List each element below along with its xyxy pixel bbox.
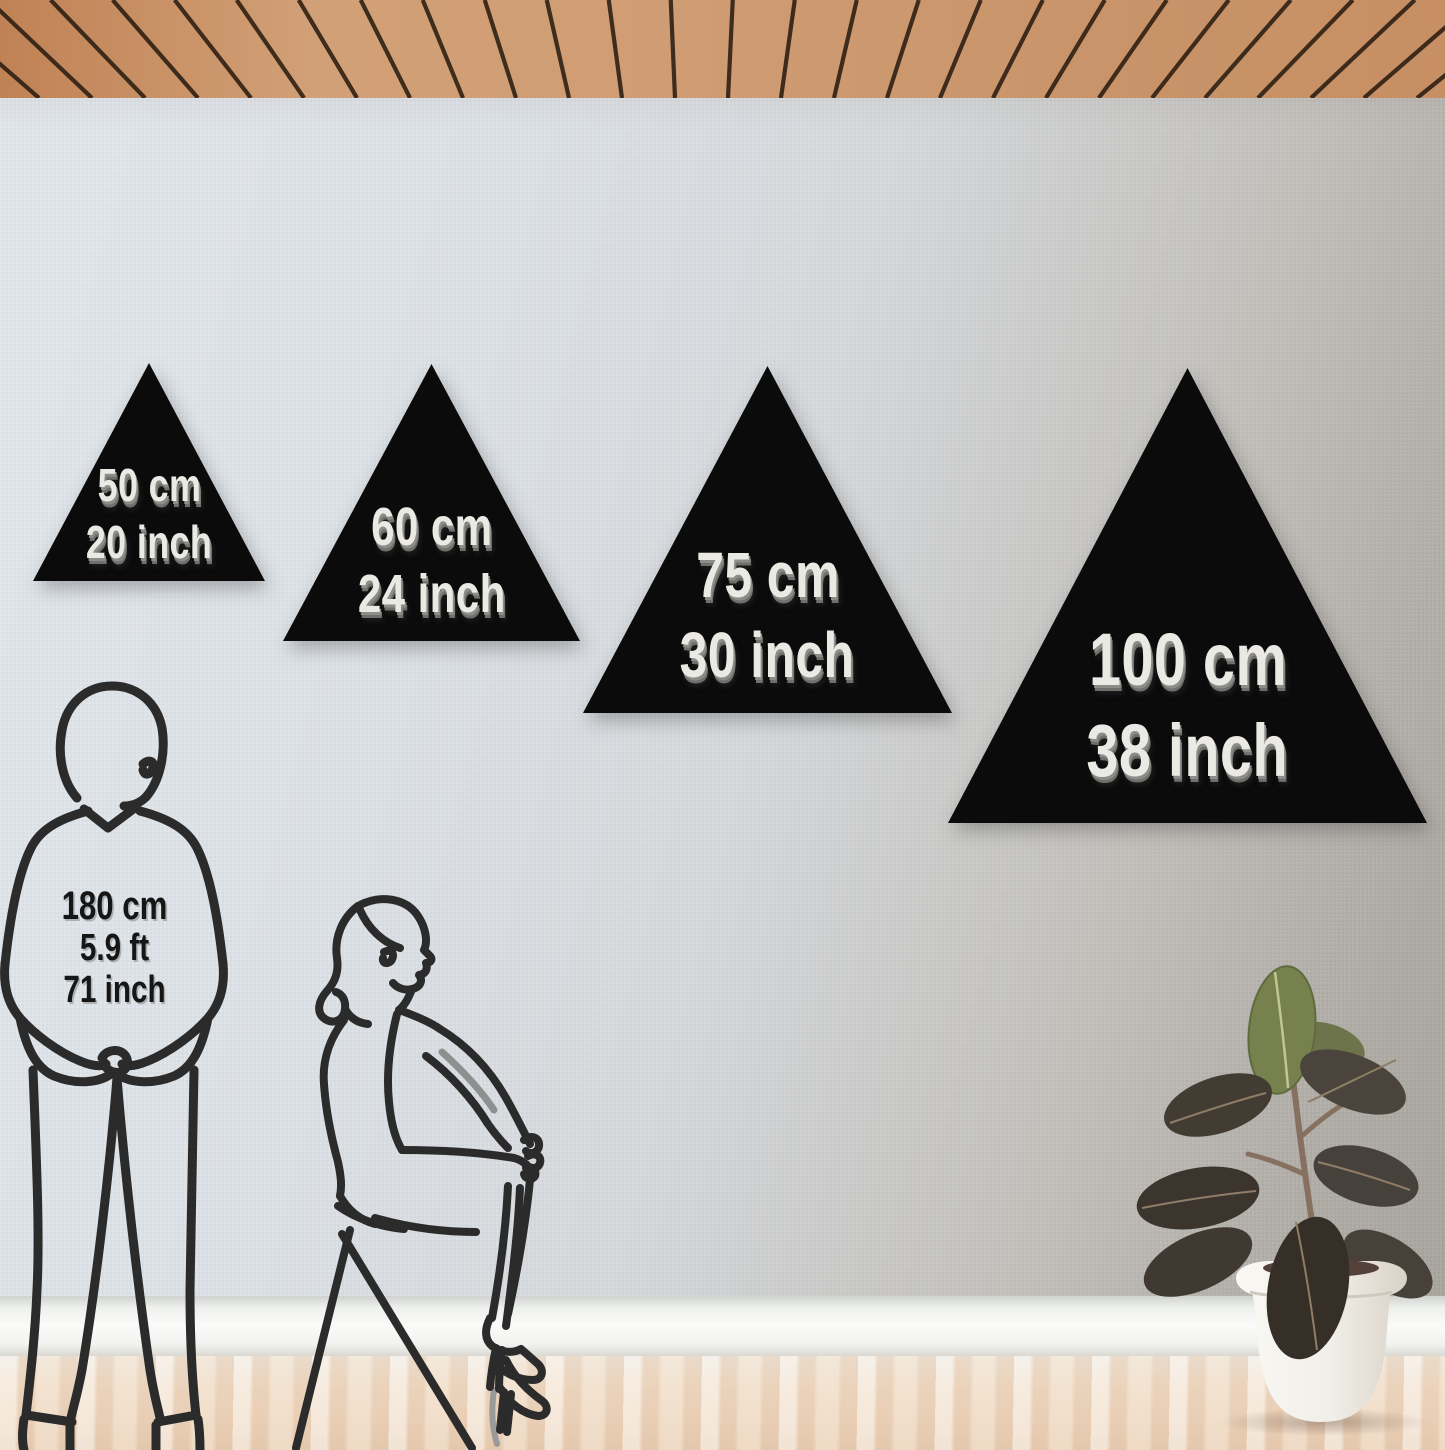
- wood-slat-ceiling: [0, 0, 1445, 98]
- size-triangle-50cm: 50 cm 20 inch: [33, 363, 265, 571]
- size-triangle-75cm: 75 cm 30 inch: [583, 366, 952, 695]
- size-cm-label: 100 cm: [1088, 614, 1286, 706]
- size-inch-label: 30 inch: [680, 616, 855, 695]
- standing-man-line-art: [0, 670, 260, 1450]
- reference-height-label: 180 cm 5.9 ft 71 inch: [22, 884, 207, 1012]
- triangle-shape: 50 cm 20 inch: [33, 363, 265, 581]
- size-cm-label: 75 cm: [696, 536, 839, 615]
- ceiling-slat-lines: [0, 0, 1445, 98]
- triangle-shape: 100 cm 38 inch: [948, 368, 1427, 823]
- size-cm-label: 60 cm: [371, 494, 492, 561]
- size-inch-label: 24 inch: [358, 561, 506, 628]
- height-cm-label: 180 cm: [42, 884, 186, 928]
- height-ft-label: 5.9 ft: [42, 928, 186, 970]
- size-inch-label: 38 inch: [1087, 705, 1289, 797]
- size-inch-label: 20 inch: [86, 514, 212, 571]
- triangle-shape: 75 cm 30 inch: [583, 366, 952, 713]
- sitting-woman-line-art: [280, 890, 610, 1450]
- size-chart-mockup-scene: 50 cm 20 inch 60 cm 24 inch 75 cm 30 inc…: [0, 0, 1445, 1450]
- size-cm-label: 50 cm: [97, 457, 201, 514]
- height-inch-label: 71 inch: [42, 970, 186, 1012]
- potted-rubber-plant: [1100, 950, 1445, 1450]
- size-triangle-60cm: 60 cm 24 inch: [283, 364, 580, 628]
- triangle-shape: 60 cm 24 inch: [283, 364, 580, 641]
- size-triangle-100cm: 100 cm 38 inch: [948, 368, 1427, 797]
